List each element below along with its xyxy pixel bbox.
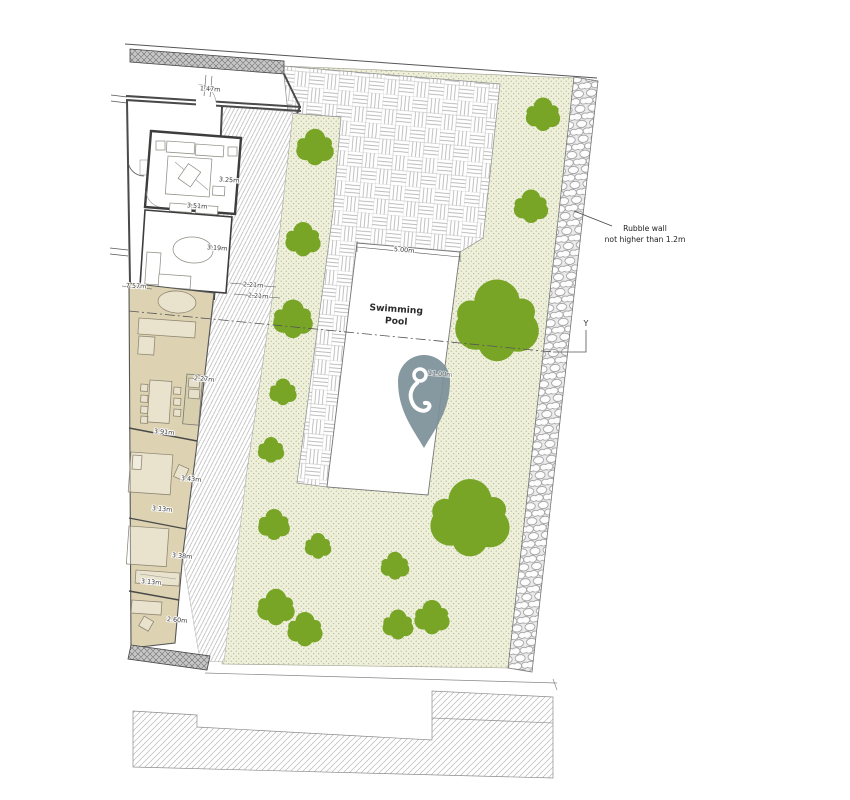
rubble-wall-note: Rubble wall [623, 224, 667, 233]
site-plan: Swimming Pool 5.00m [0, 0, 850, 800]
pool-label: Pool [385, 315, 408, 328]
rubble-wall-note: not higher than 1.2m [605, 235, 686, 244]
dimension-label: 1.47m [200, 84, 221, 93]
dimension-label: 3.25m [219, 175, 240, 184]
party-wall-band [130, 49, 284, 74]
dimension-label: 3.51m [187, 201, 208, 210]
dimension-label: 7.57m [126, 281, 147, 290]
dimension-label: 3.19m [207, 243, 228, 252]
dimension-label: 2.21m [243, 280, 264, 289]
street-pavement [133, 673, 557, 778]
section-marker-label: Y [583, 319, 589, 328]
dimension-label: 2.21m [248, 291, 269, 300]
rubble-wall-annotation: Rubble wall not higher than 1.2m [574, 211, 685, 244]
pavement-band [133, 691, 553, 778]
party-wall-band-bottom [128, 645, 210, 670]
